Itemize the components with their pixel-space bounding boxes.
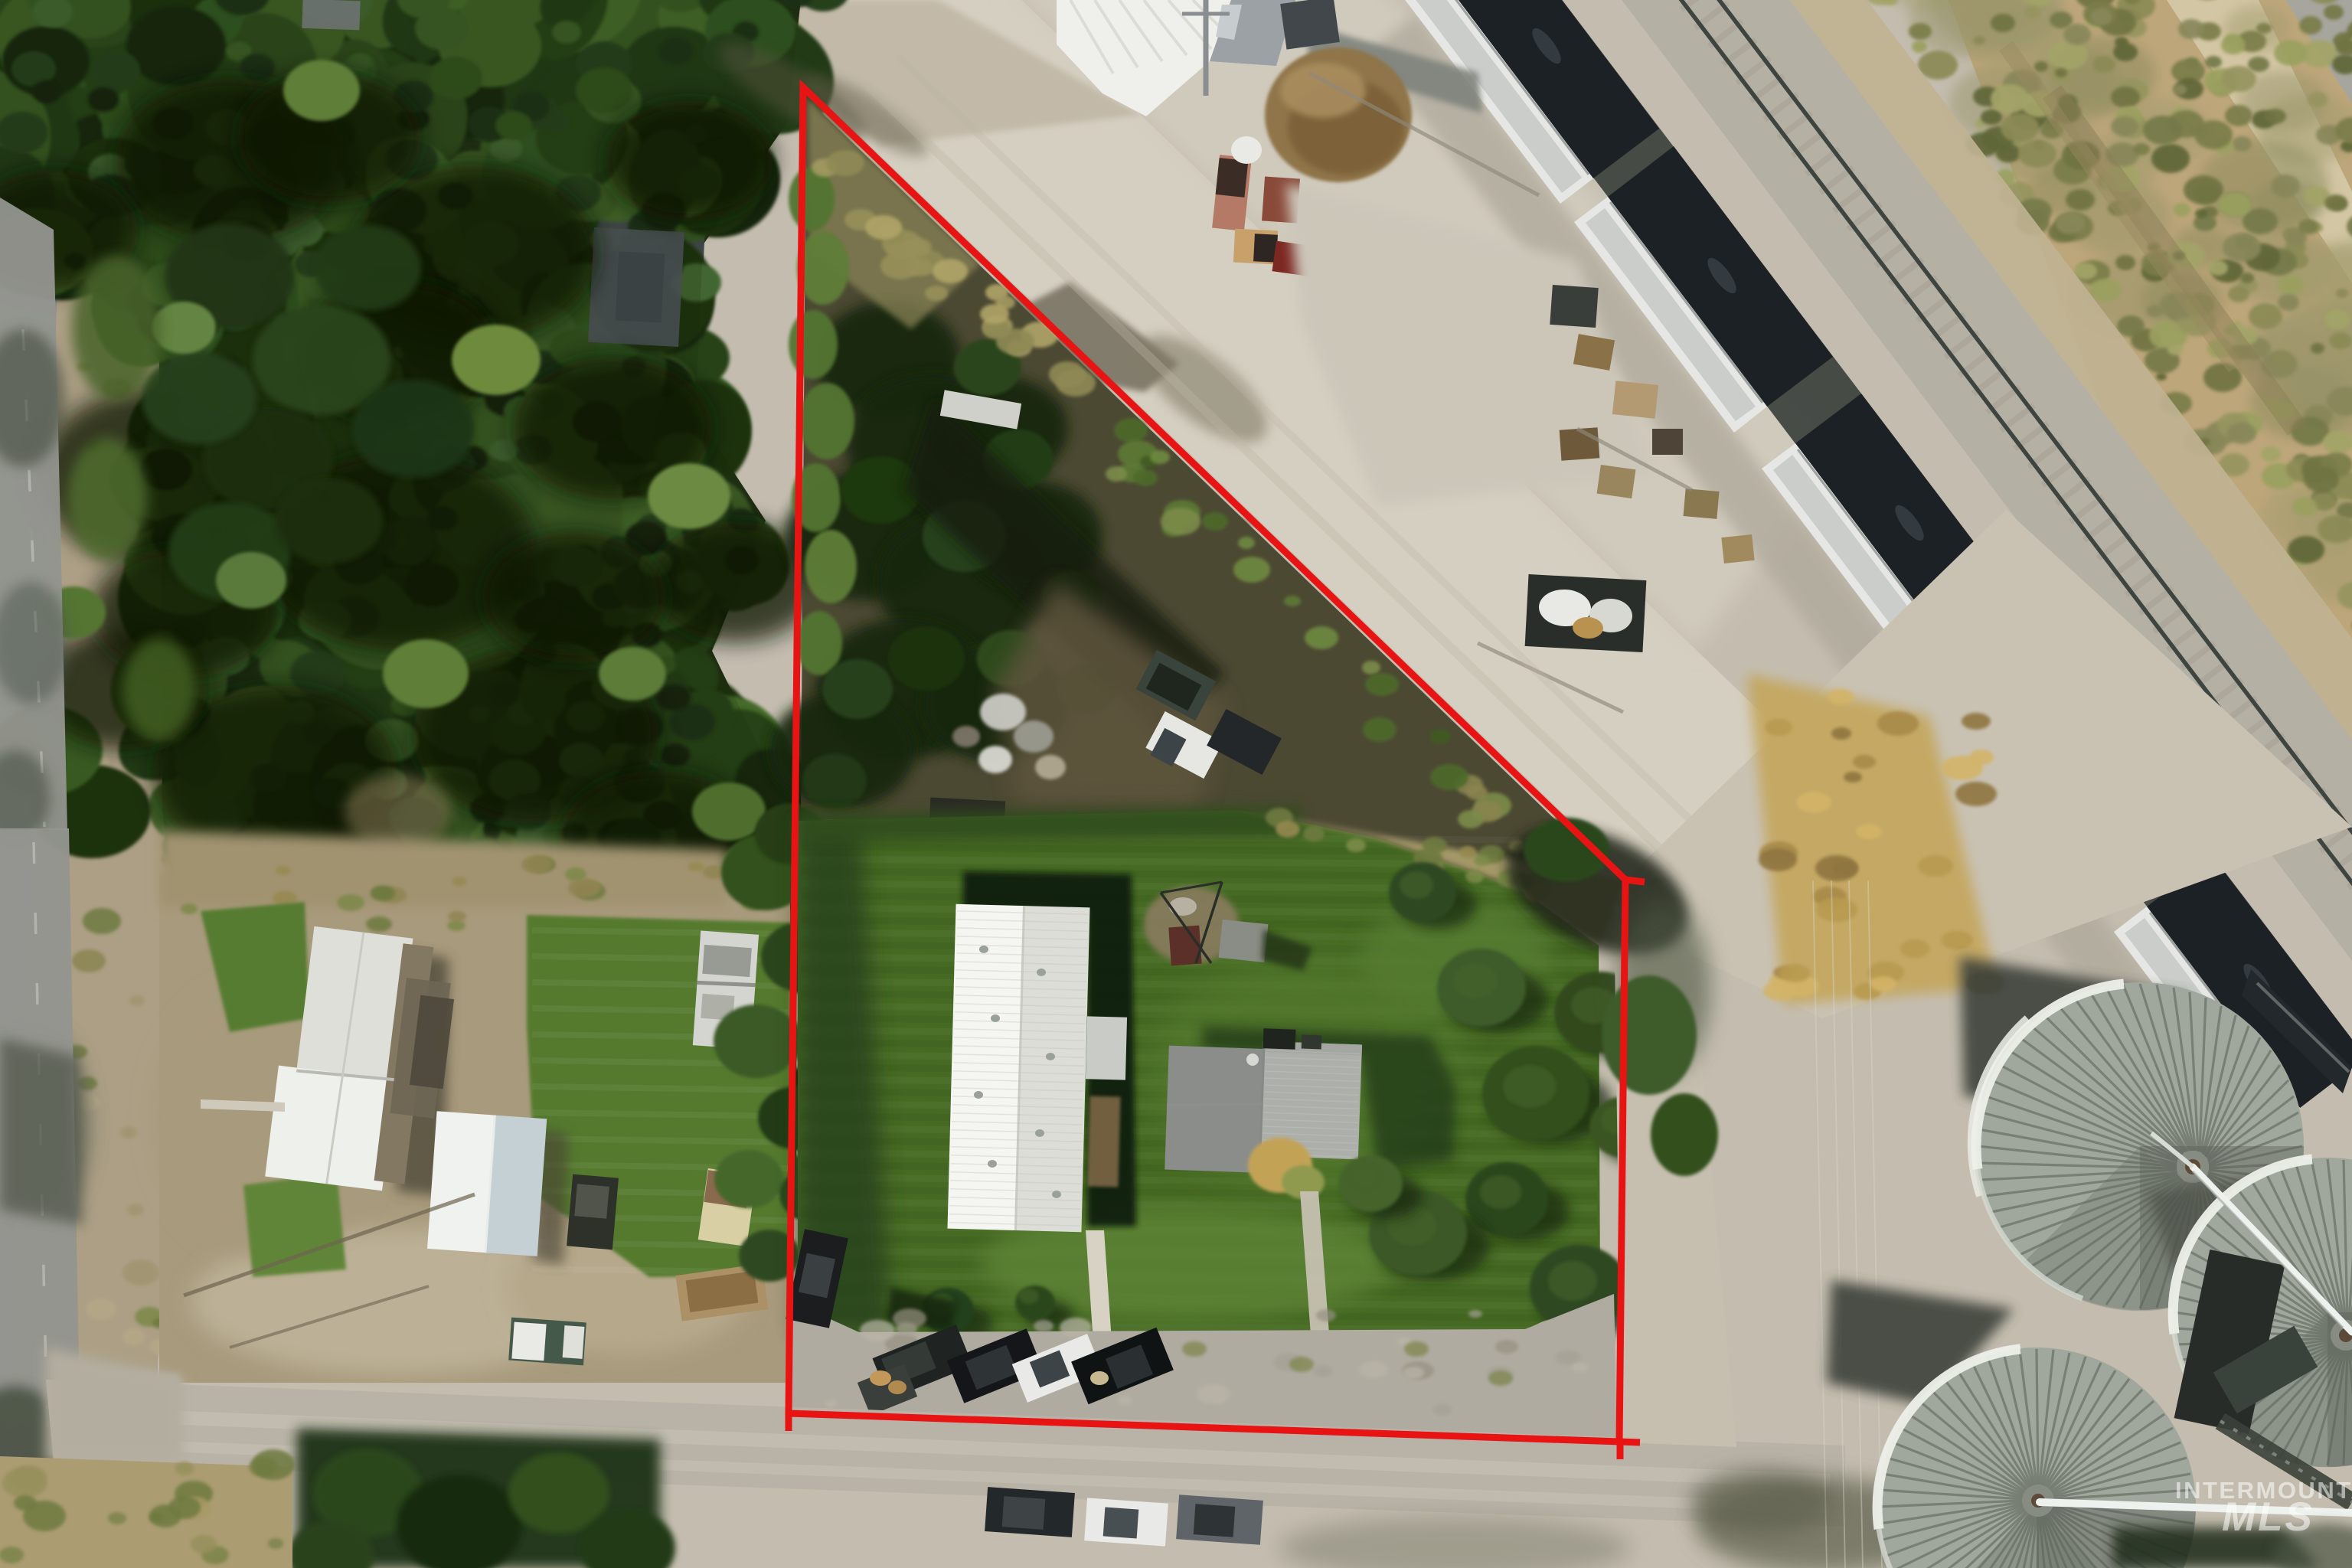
svg-text:MLS: MLS: [2222, 1494, 2314, 1540]
